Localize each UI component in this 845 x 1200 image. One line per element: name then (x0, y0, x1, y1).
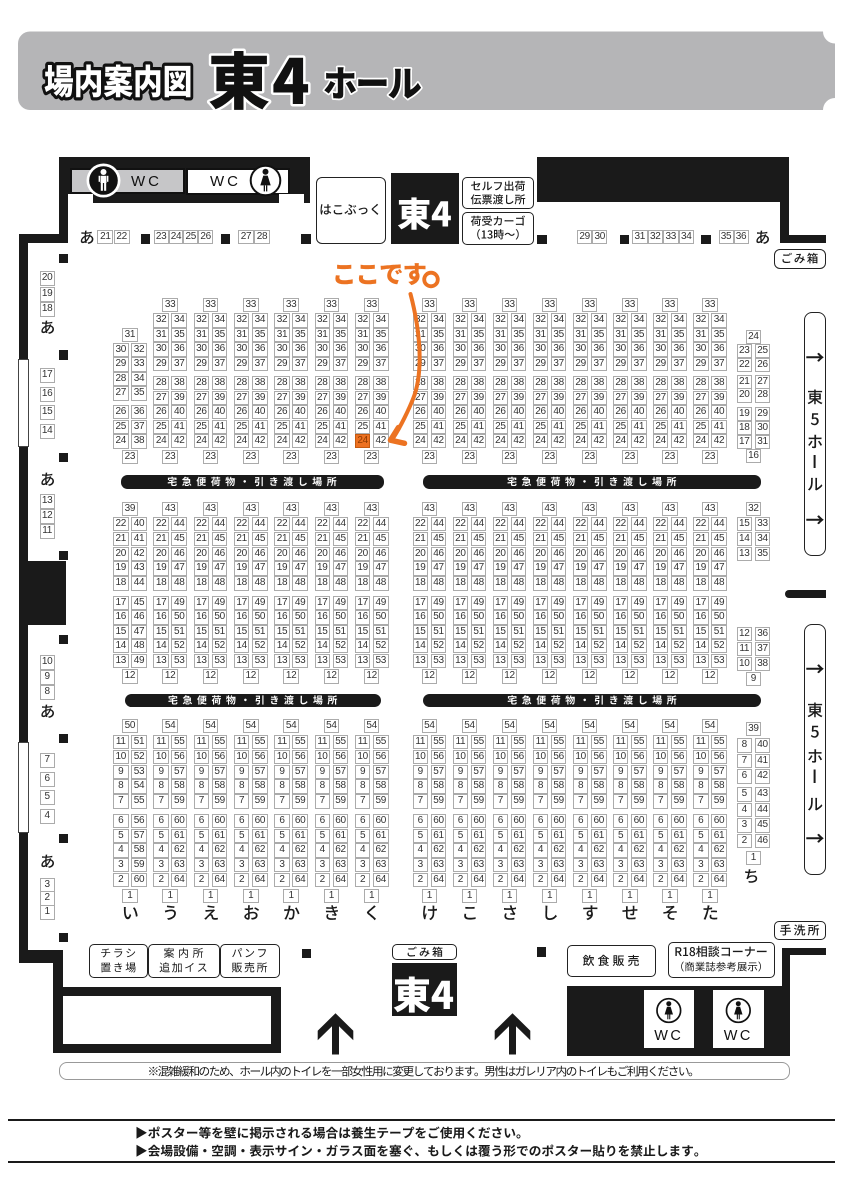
svg-text:WC: WC (131, 173, 162, 190)
svg-text:WC: WC (654, 1028, 683, 1044)
svg-text:WC: WC (210, 173, 241, 190)
svg-text:WC: WC (724, 1028, 753, 1044)
